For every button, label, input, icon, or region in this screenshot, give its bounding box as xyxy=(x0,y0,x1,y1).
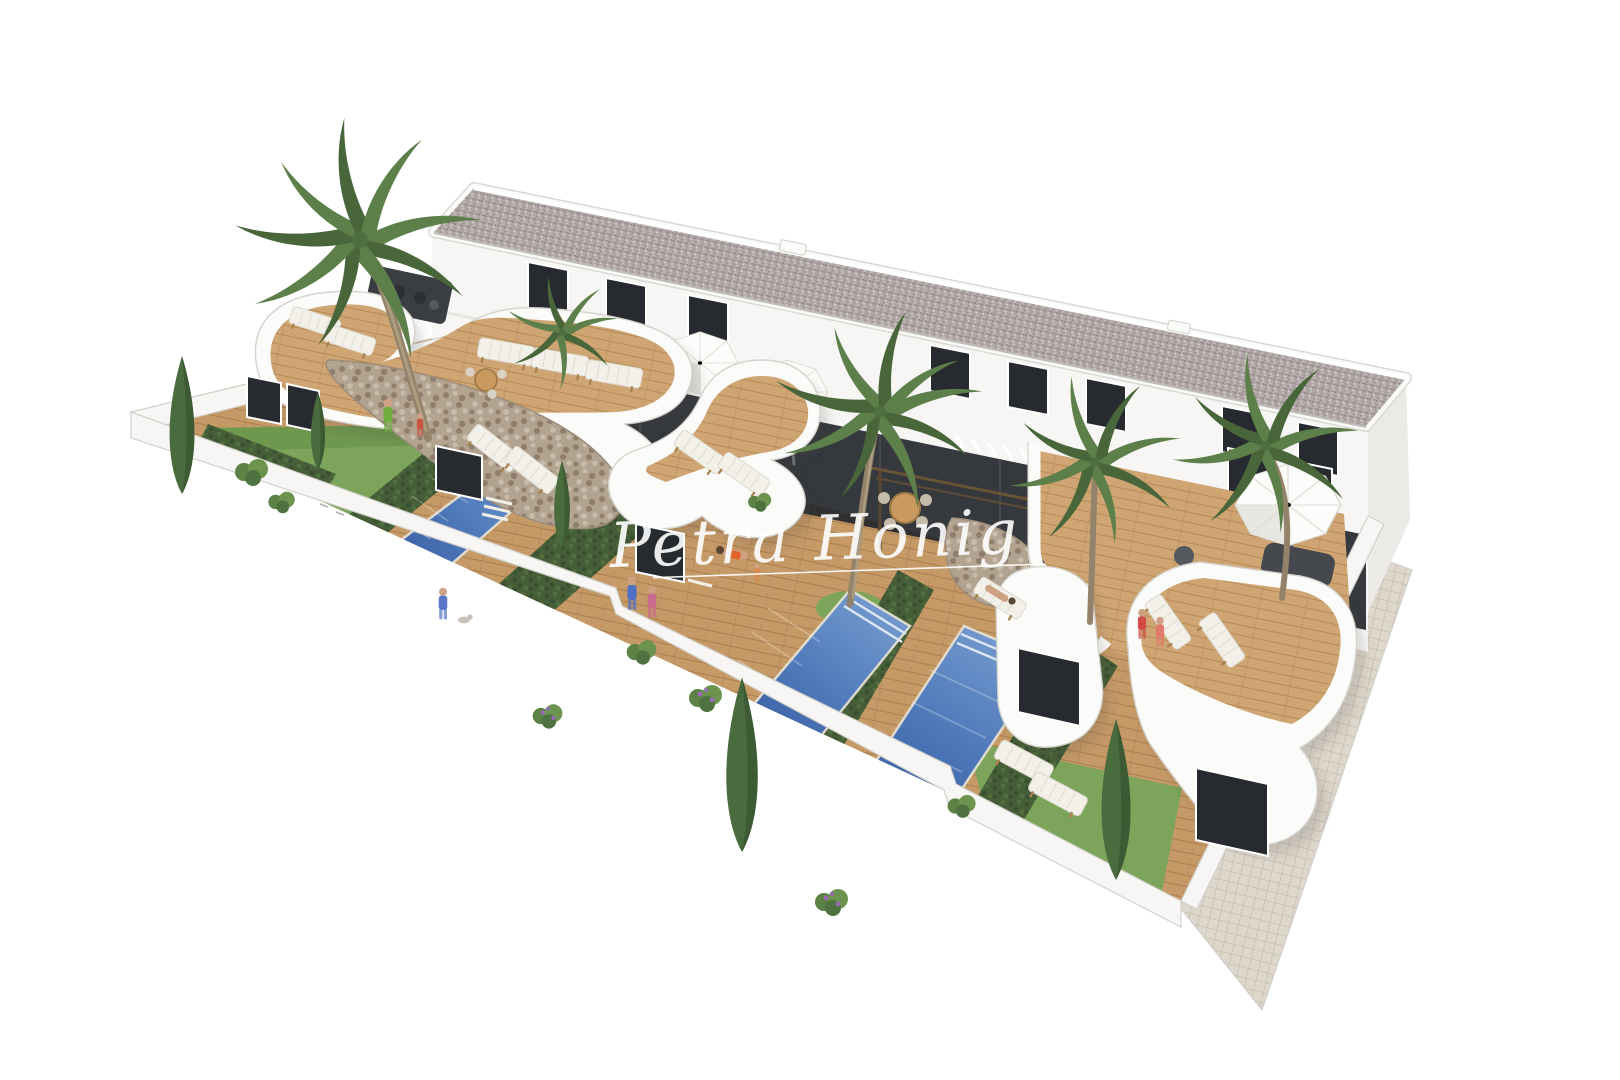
small-table xyxy=(475,369,497,391)
glass-door xyxy=(1196,768,1268,856)
render-image: Petra Honig xyxy=(0,0,1620,1080)
render-canvas: Petra Honig xyxy=(0,0,1620,1080)
glass-door xyxy=(247,376,281,424)
window-5 xyxy=(1008,361,1048,415)
glass-door xyxy=(1018,648,1080,726)
glass-door xyxy=(436,446,482,500)
watermark-text: Petra Honig xyxy=(607,495,1021,582)
watermark: Petra Honig xyxy=(607,494,1041,582)
